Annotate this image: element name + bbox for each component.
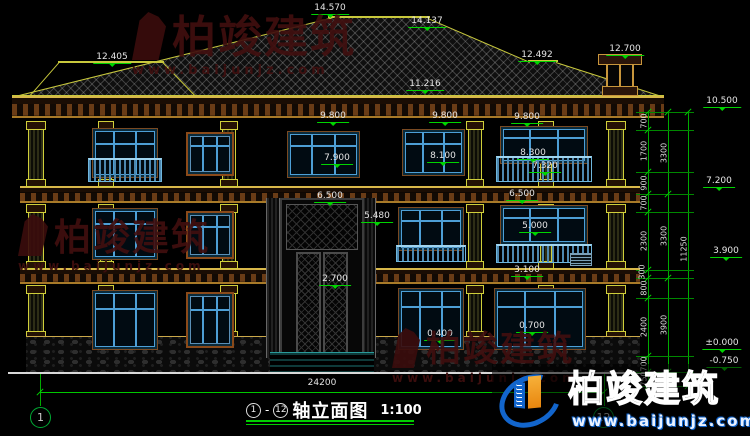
- dim-total-value: 11250: [680, 236, 689, 261]
- title-underline: [246, 420, 414, 422]
- dim-value: 1700: [640, 141, 649, 161]
- elevation-label-window-head: 6.500: [506, 189, 538, 201]
- elevation-label-ridge-lower-right: 12.492: [518, 50, 556, 62]
- elevation-label-sill: 8.100: [427, 151, 459, 163]
- pilaster: [608, 122, 624, 186]
- window: [186, 292, 234, 348]
- title-axis-to-bubble: 12: [273, 403, 288, 418]
- elevation-label-door-transom: 2.700: [319, 274, 351, 286]
- axis-number: 1: [37, 411, 44, 424]
- title-axis-dash: -: [265, 403, 269, 417]
- chimney-neck: [606, 65, 634, 86]
- balcony-rail: [396, 245, 466, 262]
- entry-steps: [270, 352, 374, 372]
- elevation-label-window-head: 6.500: [314, 191, 346, 203]
- dim-group-value: 3300: [660, 226, 669, 246]
- entry-door-left-leaf: [296, 252, 321, 354]
- dim-value: 700: [640, 195, 649, 210]
- dim-value: 700: [640, 113, 649, 128]
- elevation-label-ridge-right: 14.137: [408, 16, 446, 28]
- elevation-label-sill: 5.000: [519, 221, 551, 233]
- portal-transom-panel: [286, 204, 358, 250]
- elevation-label-hip-left: 12.405: [93, 52, 131, 64]
- elevation-label-chimney-top: 12.700: [606, 44, 644, 56]
- elevation-label-portal-top: 5.480: [361, 211, 393, 223]
- brand-url-text: www.baijunjz.com: [572, 412, 750, 430]
- elevation-label-eave: 10.500: [703, 96, 741, 108]
- overall-width-dimension: 24200: [308, 378, 337, 388]
- watermark-brand-text: 柏竣建筑: [172, 16, 356, 60]
- elevation-label-win-top: 9.800: [317, 111, 349, 123]
- elevation-label-ground: ±0.000: [702, 338, 741, 350]
- watermark-logo-icon: [132, 12, 166, 60]
- axis-bubble-1: 1: [30, 407, 51, 428]
- brand-name-text: 柏竣建筑: [568, 372, 720, 408]
- brand-building-icon: [528, 375, 541, 408]
- dim-group-value: 3300: [660, 143, 669, 163]
- brand-logo: 柏竣建筑 www.baijunjz.com: [492, 364, 750, 436]
- watermark-url-text: www.baijunjz.com: [18, 259, 210, 273]
- entry-door-right-leaf: [323, 252, 348, 354]
- balcony-rail: [88, 158, 162, 182]
- elevation-label-win-top: 9.800: [511, 112, 543, 124]
- pilaster: [28, 286, 44, 338]
- elevation-label-sill: 7.900: [321, 153, 353, 165]
- vent-grille: [570, 253, 592, 266]
- dim-value: 2300: [640, 231, 649, 251]
- elevation-label-window-head: 3.100: [511, 265, 543, 277]
- dim-value: 800: [640, 280, 649, 295]
- pilaster: [608, 205, 624, 268]
- elevation-label-floor2: 3.900: [710, 246, 742, 258]
- watermark-brand-text: 柏竣建筑: [54, 219, 210, 256]
- brand-building-icon: [514, 381, 525, 408]
- pilaster: [28, 122, 44, 186]
- title-axis-from-bubble: 1: [246, 403, 261, 418]
- dim-value: 2400: [640, 317, 649, 337]
- cad-elevation-drawing: 24200 1 12 700 1700 900 700 2300 300 800…: [0, 0, 750, 436]
- chimney-base: [602, 86, 638, 96]
- pilaster: [608, 286, 624, 338]
- window: [186, 132, 234, 176]
- title-scale: 1:100: [380, 403, 421, 418]
- elevation-label-win-top: 9.800: [429, 111, 461, 123]
- dim-value: 300: [638, 264, 647, 279]
- window: [92, 290, 158, 350]
- pilaster: [468, 205, 482, 268]
- elevation-label-floor3: 7.200: [703, 176, 735, 188]
- watermark-brand-text: 柏竣建筑: [426, 333, 574, 368]
- watermark-left: 柏竣建筑 www.baijunjz.com: [18, 214, 210, 273]
- watermark-logo-icon: [18, 214, 48, 256]
- watermark-logo-icon: [392, 328, 420, 368]
- title-underline-2: [246, 424, 414, 425]
- watermark-top: 柏竣建筑 www.baijunjz.com: [132, 12, 356, 78]
- dim-group-value: 3900: [660, 315, 669, 335]
- portal-pilaster: [266, 198, 280, 358]
- pilaster: [468, 122, 482, 186]
- dim-value: 900: [640, 175, 649, 190]
- elevation-label-rail-bottom: 7.320: [529, 161, 561, 173]
- elevation-label-rail-top: 8.300: [517, 148, 549, 160]
- elevation-label-eave-upper: 11.216: [406, 79, 444, 91]
- watermark-url-text: www.baijunjz.com: [132, 63, 356, 78]
